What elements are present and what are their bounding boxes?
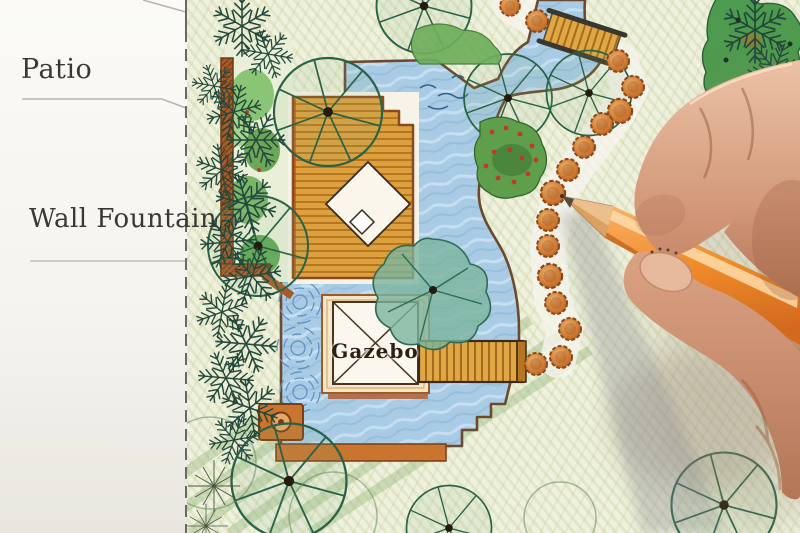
patio-label: Patio [21, 54, 92, 85]
garden-plan-photo: Patio Wall Fountain Gazebo [0, 0, 800, 533]
wall-fountain-label: Wall Fountain [29, 204, 217, 234]
plan-drawing [0, 0, 800, 533]
gazebo-label: Gazebo [331, 339, 418, 363]
